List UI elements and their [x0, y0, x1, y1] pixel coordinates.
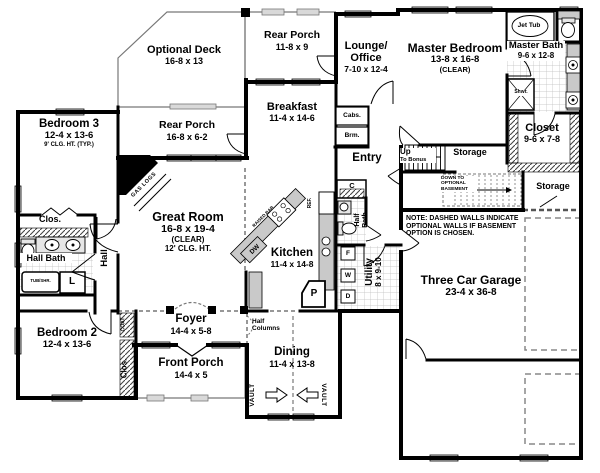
fixture-label-tub-shr: TUB/SHR.: [23, 279, 58, 284]
room-label-hall-bath: Hall Bath: [20, 253, 72, 263]
vault-arrow-left-icon: [297, 388, 318, 402]
closet-label-hall: Clos.: [28, 214, 72, 224]
closet-label-c: C: [345, 182, 359, 190]
room-label-rear-porch-upper: Rear Porch 11-8 x 9: [247, 30, 337, 52]
room-label-master-bath: Master Bath 9-6 x 12-8: [507, 41, 565, 61]
room-label-master-closet: Closet 9-6 x 7-8: [513, 122, 571, 144]
fixture-label-brm: Brm.: [337, 132, 367, 139]
room-label-dining: Dining 11-4 x 13-8: [256, 346, 328, 369]
floor-plan: Optional Deck 16-8 x 13 Rear Porch 11-8 …: [0, 0, 600, 473]
fixture-label-shower: Shwr.: [510, 90, 532, 96]
vault-arrows: [266, 388, 318, 402]
room-label-utility: Utility 8 x 9-10: [364, 247, 390, 297]
room-label-garage: Three Car Garage 23-4 x 36-8: [411, 274, 531, 299]
room-label-storage-lower: Storage: [525, 181, 581, 191]
fixture-label-washer: W: [341, 272, 355, 279]
room-label-breakfast: Breakfast 11-4 x 14-6: [251, 101, 333, 123]
closet-label-linen: L: [63, 276, 81, 287]
room-label-lounge-office: Lounge/ Office 7-10 x 12-4: [333, 40, 399, 74]
room-label-great-room: Great Room 16-8 x 19-4 (CLEAR) 12' CLG. …: [139, 210, 237, 254]
room-label-hall: Hall: [100, 240, 112, 276]
closet-label-bedroom2: Clos.: [121, 352, 132, 386]
fixture-label-freezer: F: [341, 250, 355, 257]
fixture-label-ref: REF.: [308, 192, 318, 214]
room-label-foyer: Foyer 14-4 x 5-8: [152, 313, 230, 336]
room-label-half-bath: Half Bath: [354, 208, 374, 232]
vault-label-left: VAULT: [249, 378, 259, 412]
basement-note: NOTE: DASHED WALLS INDICATE OPTIONAL WAL…: [406, 215, 520, 238]
fixture-label-jet-tub: Jet Tub: [510, 22, 548, 29]
fixture-label-dryer: D: [341, 293, 355, 300]
closet-label-coat: COAT: [122, 310, 131, 340]
fixture-label-pantry: P: [306, 288, 322, 299]
room-label-kitchen: Kitchen 11-4 x 14-8: [258, 247, 326, 269]
room-label-bedroom-2: Bedroom 2 12-4 x 13-6: [20, 327, 114, 351]
room-label-master-bedroom: Master Bedroom 13-8 x 16-8 (CLEAR): [407, 42, 503, 74]
room-label-rear-porch-lower: Rear Porch 16-8 x 6-2: [145, 120, 229, 142]
stairs-down-label: DOWN TO OPTIONAL BASEMENT: [441, 176, 477, 192]
fixture-label-cabs: Cabs.: [337, 112, 367, 119]
room-label-bedroom-3: Bedroom 3 12-4 x 13-6 9' CLG. HT. (TYP.): [22, 118, 116, 148]
stairs-up-label: Up To Bonus: [400, 148, 436, 163]
vault-arrow-right-icon: [266, 388, 287, 402]
half-columns-label: Half Columns: [252, 318, 286, 333]
room-label-entry: Entry: [342, 152, 392, 165]
vault-label-right: VAULT: [317, 378, 327, 412]
room-label-storage-upper: Storage: [442, 147, 498, 157]
room-label-optional-deck: Optional Deck 16-8 x 13: [133, 44, 235, 66]
porch-outlines: [118, 12, 336, 398]
room-label-front-porch: Front Porch 14-4 x 5: [146, 357, 236, 380]
